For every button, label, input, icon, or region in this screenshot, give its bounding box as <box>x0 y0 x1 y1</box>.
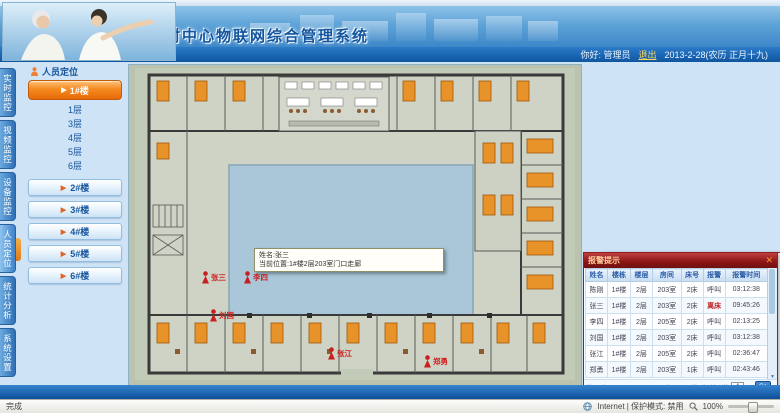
cell: 203室 <box>652 362 681 378</box>
main-area: 实时监控视频监控设备监控人员定位统计分析系统设置 人员定位 ▶ 1#楼 1层2层… <box>0 62 780 385</box>
person-icon <box>201 271 210 284</box>
cell: 2层 <box>631 330 653 346</box>
cell: 呼叫 <box>703 330 725 346</box>
cell: 1#楼 <box>607 362 630 378</box>
person-marker[interactable]: 李四 <box>243 271 252 284</box>
close-icon[interactable]: ✕ <box>765 255 773 266</box>
person-icon <box>423 355 432 368</box>
date-text: 2013-2-28(农历 正月十九) <box>664 48 768 61</box>
cell: 205室 <box>652 346 681 362</box>
sidebar-panel: 人员定位 ▶ 1#楼 1层2层3层4层5层6层 ▶2#楼▶3#楼▶4#楼▶5#楼… <box>18 62 126 284</box>
table-header-row: 姓名楼栋楼层房间床号报警报警时间 <box>586 269 768 282</box>
person-marker[interactable]: 刘国 <box>209 309 218 322</box>
arrow-icon: ▶ <box>61 272 66 280</box>
cell: 1#楼 <box>607 314 630 330</box>
person-icon <box>209 309 218 322</box>
column-header: 楼层 <box>631 269 653 282</box>
cell: 呼叫 <box>703 346 725 362</box>
active-building-label: 1#楼 <box>70 84 89 97</box>
table-row[interactable]: 张三1#楼2层203室2床离床09:45:26 <box>586 298 768 314</box>
internet-zone-icon <box>583 402 592 411</box>
alarm-table: 姓名楼栋楼层房间床号报警报警时间 陈刚1#楼2层203室2床呼叫03:12:38… <box>585 268 768 378</box>
alarm-panel-title: 报警提示 <box>588 255 620 266</box>
building-label: 2#楼 <box>70 181 89 194</box>
cell: 1#楼 <box>607 346 630 362</box>
alarm-panel-titlebar[interactable]: 报警提示 ✕ <box>584 253 777 268</box>
sidebar-tab-3[interactable]: 设备监控 <box>0 172 16 221</box>
table-row[interactable]: 张江1#楼2层205室2床呼叫02:36:47 <box>586 346 768 362</box>
arrow-icon: ▶ <box>61 228 66 236</box>
floor-item-1[interactable]: 1层 <box>28 103 122 117</box>
cell: 刘国 <box>586 330 608 346</box>
location-tooltip: 姓名:张三 当前位置:1#楼2层203室门口走廊 <box>254 248 444 272</box>
scrollbar-thumb[interactable] <box>769 269 775 314</box>
person-name: 李四 <box>253 272 268 283</box>
floor-item-3[interactable]: 3层 <box>28 117 122 131</box>
cell: 2床 <box>681 282 703 298</box>
cell: 09:45:26 <box>725 298 767 314</box>
person-marker[interactable]: 张三 <box>201 271 210 284</box>
sidebar-tab-2[interactable]: 视频监控 <box>0 120 16 169</box>
person-name: 张三 <box>211 272 226 283</box>
cell: 2层 <box>631 298 653 314</box>
page-title: 楼村中心物联网综合管理系统 <box>148 25 369 46</box>
column-header: 姓名 <box>586 269 608 282</box>
cell: 陈刚 <box>586 282 608 298</box>
zone-text: Internet | 保护模式: 禁用 <box>597 401 683 412</box>
cell: 呼叫 <box>703 362 725 378</box>
building-label: 5#楼 <box>70 247 89 260</box>
person-icon <box>243 271 252 284</box>
table-row[interactable]: 郑勇1#楼2层203室1床呼叫02:43:46 <box>586 362 768 378</box>
status-left-text: 完成 <box>6 401 22 412</box>
app-footer-bar <box>0 385 780 399</box>
cell: 1#楼 <box>607 282 630 298</box>
cell: 02:36:47 <box>725 346 767 362</box>
person-marker[interactable]: 郑勇 <box>423 355 432 368</box>
building-button-4[interactable]: ▶4#楼 <box>28 223 122 240</box>
cell: 02:43:46 <box>725 362 767 378</box>
sidebar-tab-1[interactable]: 实时监控 <box>0 68 16 117</box>
elderly-couple-photo <box>3 3 175 60</box>
cell: 1床 <box>681 362 703 378</box>
arrow-icon: ▶ <box>61 206 66 214</box>
cell: 1#楼 <box>607 298 630 314</box>
cell: 2层 <box>631 362 653 378</box>
building-button-active[interactable]: ▶ 1#楼 <box>28 80 122 100</box>
cell: 李四 <box>586 314 608 330</box>
arrow-icon: ▶ <box>61 184 66 192</box>
column-header: 床号 <box>681 269 703 282</box>
cell: 呼叫 <box>703 314 725 330</box>
arrow-icon: ▶ <box>61 86 66 94</box>
column-header: 房间 <box>652 269 681 282</box>
table-row[interactable]: 陈刚1#楼2层203室2床呼叫03:12:38 <box>586 282 768 298</box>
building-label: 3#楼 <box>70 203 89 216</box>
cell: 2床 <box>681 298 703 314</box>
cell: 1#楼 <box>607 330 630 346</box>
app-window: 楼村中心物联网综合管理系统 你好: 管理员 退出 2013-2-28(农历 正月… <box>0 0 780 413</box>
floor-item-6[interactable]: 6层 <box>28 159 122 173</box>
cell: 呼叫 <box>703 282 725 298</box>
person-name: 刘国 <box>219 310 234 321</box>
status-right-group: Internet | 保护模式: 禁用 100% <box>583 401 774 412</box>
zoom-level: 100% <box>703 402 723 411</box>
sidebar-tab-strip: 实时监控视频监控设备监控人员定位统计分析系统设置 <box>0 68 16 377</box>
panel-header: 人员定位 <box>30 65 126 78</box>
column-header: 楼栋 <box>607 269 630 282</box>
building-label: 6#楼 <box>70 269 89 282</box>
status-bar: 完成 Internet | 保护模式: 禁用 100% <box>0 399 780 413</box>
arrow-icon: ▶ <box>61 250 66 258</box>
plan-overlay: 张三李四刘国张江郑勇 <box>129 65 581 385</box>
cell: 张三 <box>586 298 608 314</box>
cell: 郑勇 <box>586 362 608 378</box>
cell: 203室 <box>652 330 681 346</box>
tooltip-location: 当前位置:1#楼2层203室门口走廊 <box>259 260 439 269</box>
person-marker[interactable]: 张江 <box>327 347 336 360</box>
table-row[interactable]: 刘国1#楼2层203室2床呼叫03:12:38 <box>586 330 768 346</box>
cell: 张江 <box>586 346 608 362</box>
zoom-icon <box>689 402 698 411</box>
sidebar-tab-5[interactable]: 统计分析 <box>0 276 16 325</box>
tooltip-name: 姓名:张三 <box>259 251 439 260</box>
building-list: ▶2#楼▶3#楼▶4#楼▶5#楼▶6#楼 <box>18 179 126 284</box>
alarm-scrollbar[interactable]: ▼ <box>767 268 777 380</box>
building-button-6[interactable]: ▶6#楼 <box>28 267 122 284</box>
floor-list: 1层2层3层4层5层6层 <box>28 100 122 176</box>
cell: 03:12:38 <box>725 330 767 346</box>
table-row[interactable]: 李四1#楼2层205室2床呼叫02:13:25 <box>586 314 768 330</box>
building-button-5[interactable]: ▶5#楼 <box>28 245 122 262</box>
cell: 离床 <box>703 298 725 314</box>
person-icon <box>30 67 39 76</box>
zoom-slider[interactable] <box>728 405 774 408</box>
floor-item-4[interactable]: 4层 <box>28 131 122 145</box>
alarm-table-body: 陈刚1#楼2层203室2床呼叫03:12:38张三1#楼2层203室2床离床09… <box>586 282 768 378</box>
person-name: 郑勇 <box>433 356 448 367</box>
logout-link[interactable]: 退出 <box>638 48 656 61</box>
header-photo <box>2 2 176 61</box>
cell: 2床 <box>681 346 703 362</box>
greeting-text: 你好: 管理员 <box>580 48 630 61</box>
cell: 03:12:38 <box>725 282 767 298</box>
panel-title: 人员定位 <box>42 65 78 78</box>
building-button-2[interactable]: ▶2#楼 <box>28 179 122 196</box>
cell: 203室 <box>652 282 681 298</box>
building-button-3[interactable]: ▶3#楼 <box>28 201 122 218</box>
floor-item-5[interactable]: 5层 <box>28 145 122 159</box>
cell: 2床 <box>681 330 703 346</box>
cell: 02:13:25 <box>725 314 767 330</box>
cell: 203室 <box>652 298 681 314</box>
cell: 2层 <box>631 314 653 330</box>
cell: 205室 <box>652 314 681 330</box>
person-name: 张江 <box>337 348 352 359</box>
zoom-slider-handle[interactable] <box>748 402 758 413</box>
column-header: 报警 <box>703 269 725 282</box>
cell: 2层 <box>631 282 653 298</box>
sidebar-tab-6[interactable]: 系统设置 <box>0 328 16 377</box>
floor-plan[interactable]: 张三李四刘国张江郑勇 姓名:张三 当前位置:1#楼2层203室门口走廊 <box>128 64 582 386</box>
cell: 2层 <box>631 346 653 362</box>
alarm-panel: 报警提示 ✕ 姓名楼栋楼层房间床号报警报警时间 陈刚1#楼2层203室2床呼叫0… <box>583 252 778 394</box>
sidebar-tab-4[interactable]: 人员定位 <box>0 224 16 273</box>
column-header: 报警时间 <box>725 269 767 282</box>
person-icon <box>327 347 336 360</box>
building-label: 4#楼 <box>70 225 89 238</box>
cell: 2床 <box>681 314 703 330</box>
